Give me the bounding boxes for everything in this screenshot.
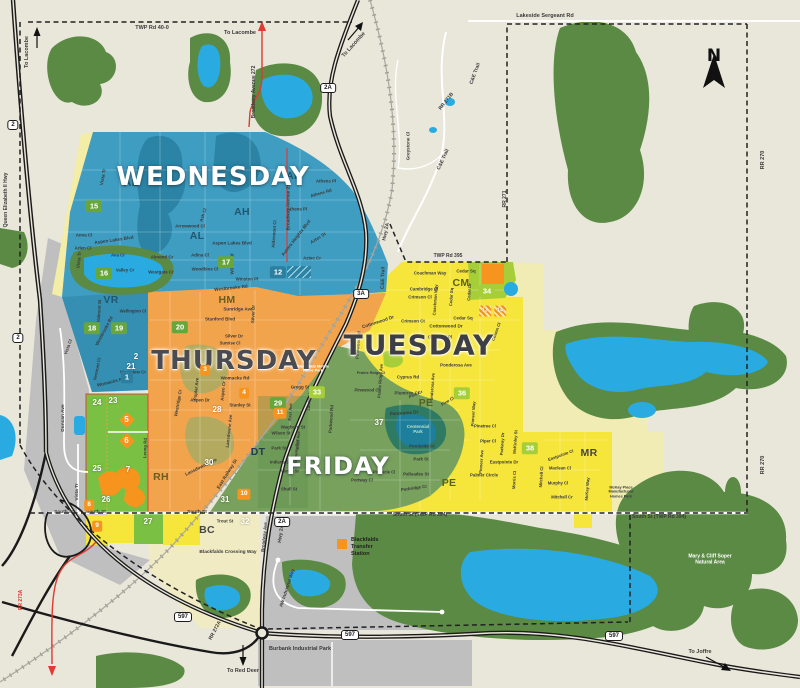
zone-12-hatch <box>287 266 311 278</box>
road-endpoint-2 <box>440 610 445 615</box>
orange-dev-block <box>482 264 504 284</box>
yellow-block-1 <box>107 513 134 543</box>
map-artwork <box>0 0 800 688</box>
transfer-station-swatch-icon <box>337 539 347 549</box>
roundabout <box>257 628 268 639</box>
road-endpoint-1 <box>276 558 281 563</box>
friday-dt-block <box>258 396 308 508</box>
zone-27-block <box>134 512 163 544</box>
transfer-station-label: Blackfalds Transfer Station <box>351 537 379 558</box>
yellow-block-2 <box>163 513 200 545</box>
map-canvas: TWP Rd 40-0To LacombeTo LacombeTo Lacomb… <box>0 0 800 688</box>
transfer-station-legend: Blackfalds Transfer Station <box>337 537 379 558</box>
north-arrow-icon <box>694 52 734 94</box>
gray-burbank <box>258 640 472 686</box>
yellow-tab <box>574 513 592 528</box>
north-arrow: N <box>694 52 734 66</box>
